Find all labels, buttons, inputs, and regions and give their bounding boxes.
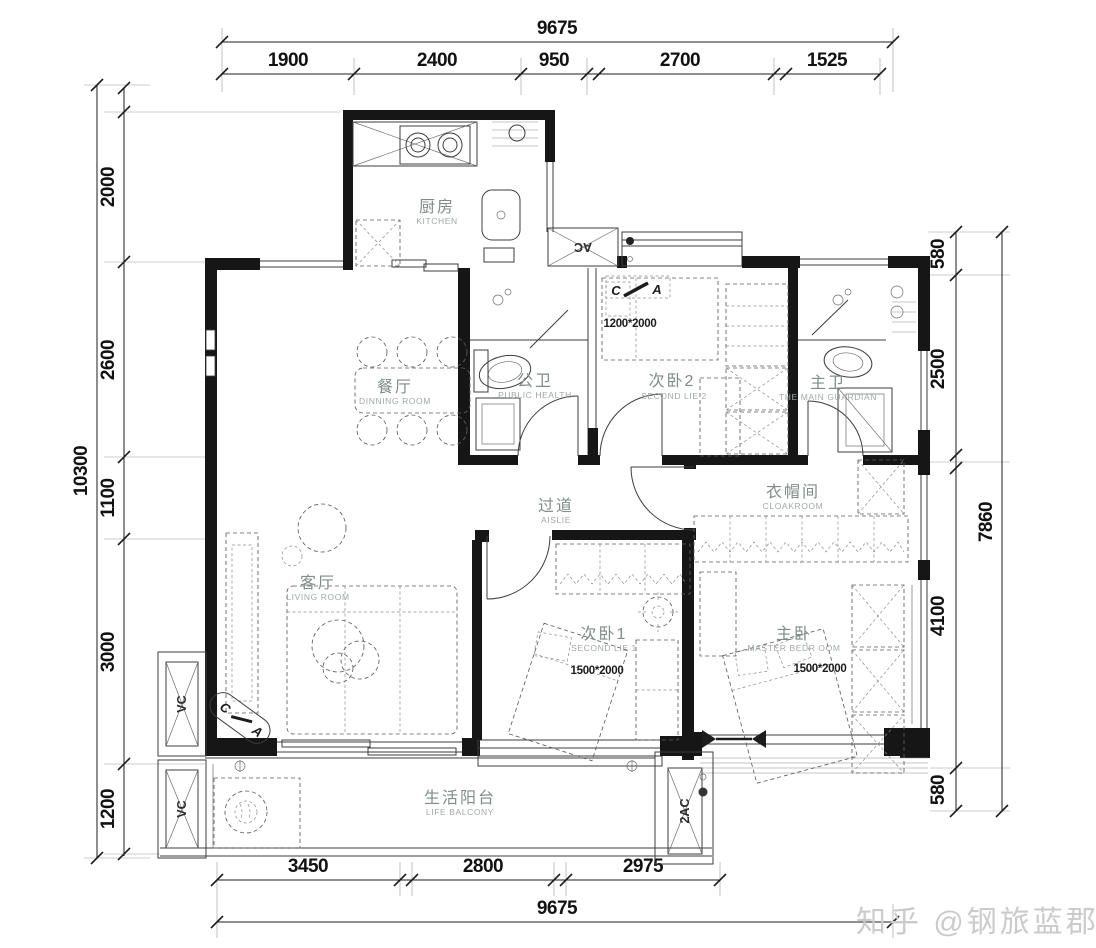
balcony-label-en: LIFE BALCONY bbox=[426, 807, 494, 817]
dim-left-total: 10300 bbox=[71, 446, 92, 496]
room-aisle: 过道 AISLIE bbox=[538, 497, 574, 525]
bedroom2-label-zh: 次卧2 bbox=[649, 372, 696, 390]
dimension-left: 10300 2000 2600 1100 3000 1200 bbox=[71, 79, 130, 864]
tv-cabinet bbox=[226, 533, 258, 713]
room-living: 客厅 LIVING ROOM bbox=[226, 504, 457, 734]
room-master-bath: 主卫 THE MAIN GUARDIAN bbox=[779, 286, 916, 452]
dimension-top: 9675 1900 2400 950 2700 1525 bbox=[216, 18, 899, 80]
dim-left-5: 1200 bbox=[98, 789, 119, 829]
cloakroom-label-zh: 衣帽间 bbox=[766, 483, 820, 501]
room-kitchen: 厨房 KITCHEN bbox=[353, 122, 538, 266]
armchair bbox=[298, 504, 346, 552]
bedroom1-bed-size: 1500*2000 bbox=[571, 665, 624, 677]
room-master-bedroom: 主卧 MASTER BEDR OOM 1500*2000 bbox=[700, 572, 904, 783]
vc-lower-label: VC bbox=[175, 800, 189, 817]
dim-top-2: 2400 bbox=[417, 50, 457, 71]
room-public-bath: 公卫 PUBLIC HEALTH bbox=[470, 289, 588, 450]
bedroom1-label-zh: 次卧1 bbox=[581, 625, 628, 643]
bedroom2-bed-size: 1200*2000 bbox=[604, 318, 657, 330]
marker2-a: A bbox=[248, 722, 265, 740]
balcony-label-zh: 生活阳台 bbox=[424, 789, 496, 807]
living-label-en: LIVING ROOM bbox=[286, 592, 349, 602]
section-marker-bottom bbox=[702, 730, 766, 748]
bedroom2-wardrobe bbox=[726, 284, 788, 454]
bedroom2-label-en: SECOND LIE 2 bbox=[641, 391, 707, 401]
room-bedroom2: 1200*2000 次卧2 SECOND LIE 2 bbox=[602, 278, 788, 456]
dim-right-4: 580 bbox=[928, 775, 949, 805]
dim-left-4: 3000 bbox=[98, 632, 119, 672]
dim-right-3: 4100 bbox=[928, 596, 949, 636]
dim-bottom-2: 2800 bbox=[463, 856, 503, 877]
marker1-c: C bbox=[611, 283, 621, 298]
sofa bbox=[287, 586, 457, 734]
dimension-right: 580 2500 4100 580 7860 bbox=[928, 226, 1008, 817]
kitchen-sink bbox=[482, 190, 520, 240]
shaft-vc-lower: VC bbox=[158, 760, 206, 858]
dim-bottom-total: 9675 bbox=[537, 898, 578, 919]
dining-label-en: DINNING ROOM bbox=[359, 396, 431, 406]
dimension-bottom: 3450 2800 2975 9675 bbox=[211, 856, 899, 928]
master-bed-size: 1500*2000 bbox=[794, 663, 847, 675]
switch-dot bbox=[626, 237, 634, 245]
marker1-a: A bbox=[651, 282, 661, 297]
ceiling-fixture bbox=[643, 597, 673, 627]
balcony-ac-label: 2AC bbox=[678, 798, 692, 823]
master-bedroom-label-en: MASTER BEDR OOM bbox=[747, 643, 840, 653]
bedroom1-label-en: SECOND LIE 1 bbox=[571, 643, 637, 653]
switch-dot bbox=[699, 788, 708, 797]
floor-plan: 9675 1900 2400 950 2700 1525 10300 2000 … bbox=[0, 0, 1096, 948]
dim-left-3: 1100 bbox=[98, 478, 119, 517]
aisle-label-zh: 过道 bbox=[538, 497, 574, 515]
kitchen-ac-label: AC bbox=[574, 240, 592, 254]
section-marker-top: C A bbox=[606, 276, 670, 298]
public-bath-label-zh: 公卫 bbox=[517, 373, 553, 390]
shaft-vc-upper: VC bbox=[158, 652, 206, 756]
dim-top-5: 1525 bbox=[807, 50, 848, 71]
aisle-label-en: AISLIE bbox=[541, 515, 571, 525]
kitchen-label-zh: 厨房 bbox=[419, 198, 455, 216]
bedroom1-wardrobe bbox=[556, 544, 690, 594]
kitchen-heater bbox=[492, 122, 538, 146]
room-balcony: 生活阳台 LIFE BALCONY bbox=[160, 758, 712, 856]
dim-top-3: 950 bbox=[539, 50, 569, 71]
room-dining: 餐厅 DINNING ROOM bbox=[355, 337, 470, 445]
dim-right-1: 580 bbox=[928, 239, 949, 269]
vc-upper-label: VC bbox=[175, 695, 189, 712]
dining-label-zh: 餐厅 bbox=[377, 378, 413, 396]
living-label-zh: 客厅 bbox=[300, 574, 336, 592]
cloakroom-label-en: CLOAKROOM bbox=[763, 501, 824, 511]
dim-top-total: 9675 bbox=[537, 18, 578, 39]
public-bath-label-en: PUBLIC HEALTH bbox=[498, 390, 572, 400]
dim-right-2: 2500 bbox=[928, 349, 949, 389]
master-bedroom-label-zh: 主卧 bbox=[776, 625, 812, 643]
dim-right-total: 7860 bbox=[976, 502, 997, 542]
room-bedroom1: 次卧1 SECOND LIE 1 1500*2000 bbox=[505, 544, 690, 761]
master-dresser bbox=[700, 572, 736, 656]
master-bath-label-en: THE MAIN GUARDIAN bbox=[779, 392, 877, 402]
master-bath-label-zh: 主卫 bbox=[810, 374, 846, 392]
dim-bottom-3: 2975 bbox=[623, 856, 664, 877]
watermark: 知乎 @钢旅蓝郡业主 bbox=[856, 906, 1096, 939]
marker2-c: C bbox=[217, 699, 234, 717]
room-cloakroom: 衣帽间 CLOAKROOM bbox=[694, 460, 908, 562]
kitchen-fridge bbox=[356, 220, 400, 266]
dim-top-1: 1900 bbox=[268, 50, 308, 71]
dim-bottom-1: 3450 bbox=[288, 856, 328, 877]
washing-machine bbox=[214, 778, 300, 848]
dim-left-2: 2600 bbox=[98, 340, 119, 380]
shaft-balcony-ac: 2AC bbox=[655, 752, 713, 864]
dim-top-4: 2700 bbox=[660, 50, 700, 71]
dim-left-1: 2000 bbox=[98, 167, 119, 207]
kitchen-label-en: KITCHEN bbox=[416, 216, 458, 226]
